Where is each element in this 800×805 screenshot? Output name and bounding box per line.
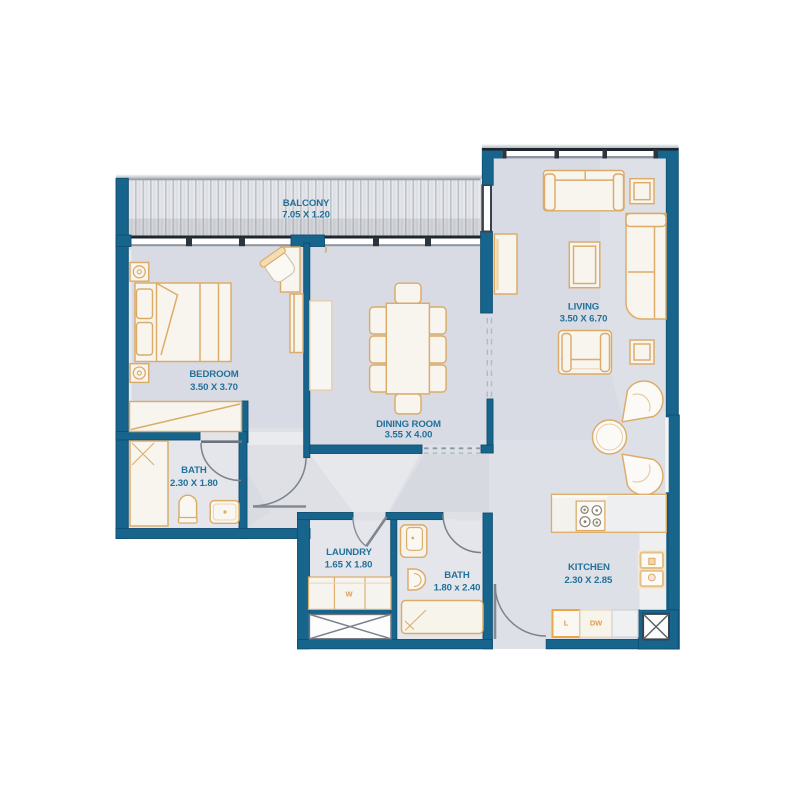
svg-text:DW: DW: [590, 619, 603, 628]
svg-text:BEDROOM: BEDROOM: [189, 369, 238, 380]
svg-text:BATH: BATH: [444, 570, 470, 581]
svg-text:7.05 X 1.20: 7.05 X 1.20: [282, 209, 330, 220]
svg-text:LAUNDRY: LAUNDRY: [326, 547, 372, 558]
svg-text:L: L: [564, 619, 569, 628]
svg-text:W: W: [346, 590, 354, 599]
svg-text:3.55 X 4.00: 3.55 X 4.00: [385, 430, 433, 441]
svg-text:DINING ROOM: DINING ROOM: [376, 419, 441, 430]
svg-text:3.50 X 3.70: 3.50 X 3.70: [190, 382, 238, 393]
svg-text:BALCONY: BALCONY: [283, 198, 330, 209]
svg-text:1.80 x 2.40: 1.80 x 2.40: [434, 582, 481, 593]
svg-text:BATH: BATH: [181, 465, 207, 476]
svg-text:KITCHEN: KITCHEN: [568, 562, 610, 573]
svg-text:2.30 X 2.85: 2.30 X 2.85: [564, 575, 613, 586]
svg-text:3.50 X 6.70: 3.50 X 6.70: [560, 314, 608, 325]
svg-text:LIVING: LIVING: [568, 301, 599, 312]
svg-text:2.30 X 1.80: 2.30 X 1.80: [170, 478, 218, 489]
svg-text:1.65 X 1.80: 1.65 X 1.80: [325, 560, 373, 571]
